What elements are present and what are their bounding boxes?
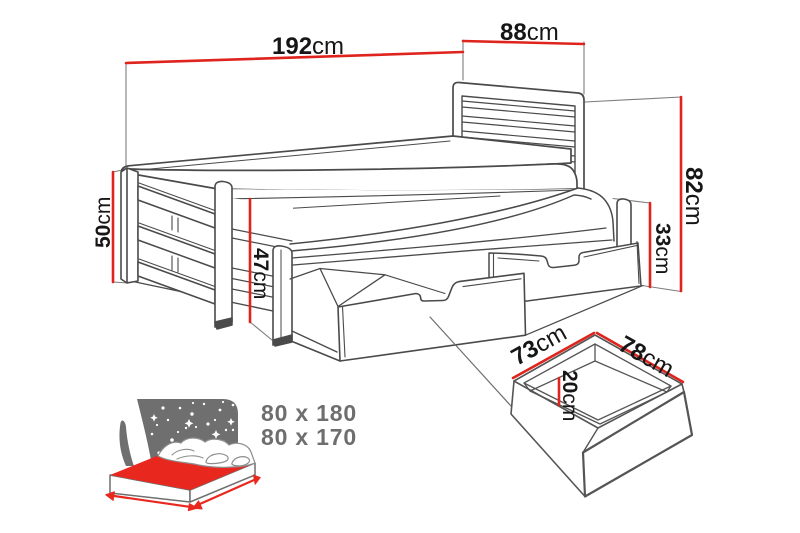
svg-text:192cm: 192cm xyxy=(272,33,344,60)
svg-text:80 x 170: 80 x 170 xyxy=(261,424,357,450)
svg-text:50cm: 50cm xyxy=(92,197,115,248)
svg-text:47cm: 47cm xyxy=(249,248,272,299)
svg-text:82cm: 82cm xyxy=(680,167,707,226)
svg-text:20cm: 20cm xyxy=(558,370,581,421)
svg-text:33cm: 33cm xyxy=(651,223,674,274)
svg-text:88cm: 88cm xyxy=(500,19,559,46)
svg-text:80 x 180: 80 x 180 xyxy=(261,400,357,426)
